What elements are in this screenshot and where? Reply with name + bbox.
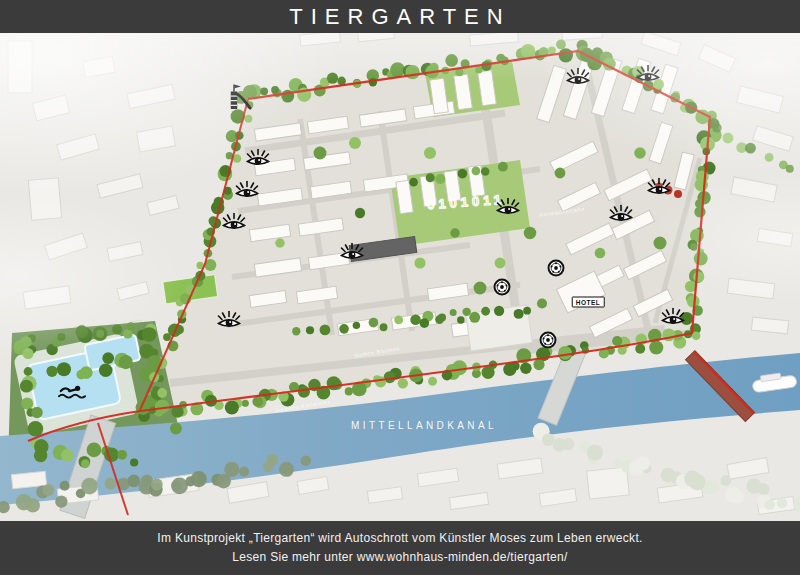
viewpoint-eye-icon — [496, 198, 520, 217]
canal-label: MITTELLANDKANAL — [351, 420, 497, 431]
car-wheel-icon — [493, 278, 511, 296]
map-markers: MITTELLANDKANAL 0101011 HOTEL — [0, 33, 800, 521]
street-label: Hermannstraße — [539, 206, 585, 218]
tiergarten-poster: TIERGARTEN — [0, 0, 800, 575]
viewpoint-eye-icon — [246, 149, 270, 168]
hotel-badge: HOTEL — [572, 297, 605, 308]
footer-line2: Lesen Sie mehr unter www.wohnhaus-minden… — [0, 545, 800, 564]
binary-art-label: 0101011 — [427, 192, 506, 212]
footer-bar: Im Kunstprojekt „Tiergarten“ wird Autosc… — [0, 521, 800, 575]
car-wheel-icon — [547, 259, 565, 277]
header-bar: TIERGARTEN — [0, 0, 800, 33]
viewpoint-eye-icon — [609, 205, 633, 224]
street-label: Radweg Kanalufer — [275, 398, 330, 413]
car-wheel-icon — [539, 331, 557, 349]
viewpoint-eye-icon — [647, 178, 671, 197]
viewpoint-eye-icon — [217, 311, 241, 330]
map-view: MITTELLANDKANAL 0101011 HOTEL — [0, 33, 800, 521]
playground-slide-icon — [228, 83, 252, 111]
street-label: Sieben Bäumen — [353, 345, 400, 358]
viewpoint-eye-icon — [566, 68, 590, 87]
viewpoint-eye-icon — [235, 181, 259, 200]
footer-line1: Im Kunstprojekt „Tiergarten“ wird Autosc… — [0, 521, 800, 545]
viewpoint-eye-icon — [222, 213, 246, 232]
viewpoint-eye-icon — [340, 243, 364, 262]
swimmer-icon — [58, 384, 86, 401]
viewpoint-eye-icon — [636, 65, 660, 84]
page-title: TIERGARTEN — [289, 4, 510, 30]
viewpoint-eye-icon — [661, 308, 685, 327]
